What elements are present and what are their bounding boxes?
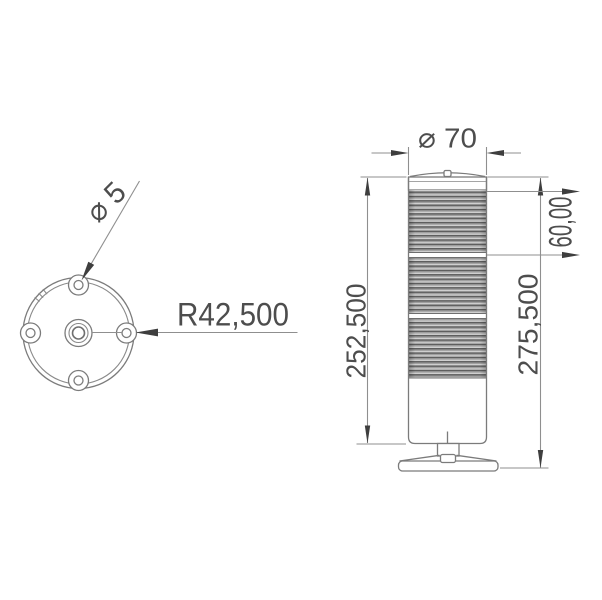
module-height-arrow-top	[562, 188, 580, 194]
mounting-hole-top	[74, 281, 83, 290]
foot-slope-right	[457, 455, 497, 461]
center-hub	[65, 320, 92, 347]
mounting-hole-bottom	[74, 376, 83, 385]
cap-nub	[444, 171, 451, 177]
body-height-label: 252,500	[341, 284, 372, 379]
diameter-arrow-right	[487, 150, 505, 156]
mounting-hole-right	[122, 329, 131, 338]
diameter-dimension: ⌀ 70	[372, 123, 522, 176]
technical-drawing: R42,500 ⌀ 5	[0, 0, 602, 600]
module-height-label: 60,00	[543, 197, 579, 248]
tower-cap	[409, 171, 487, 191]
foot-slope-left	[400, 455, 440, 461]
cap-body	[409, 177, 487, 190]
total-height-arrow-top	[538, 178, 543, 196]
top-view: R42,500 ⌀ 5	[21, 176, 298, 391]
diameter-label: ⌀ 70	[418, 123, 477, 154]
mounting-hole-left	[26, 329, 35, 338]
lens-module-2	[409, 258, 486, 314]
total-height-dimension: 275,500	[488, 177, 549, 468]
radius-arrowhead	[136, 329, 159, 337]
total-height-arrow-bottom	[538, 450, 543, 468]
body-height-dimension: 252,500	[341, 177, 407, 444]
drawing-canvas: R42,500 ⌀ 5	[0, 0, 602, 600]
body-height-arrow-top	[365, 178, 370, 196]
radius-label: R42,500	[177, 297, 289, 333]
foot-tab	[441, 455, 456, 463]
tower-foot	[399, 444, 499, 472]
diameter-arrow-left	[391, 150, 409, 156]
total-height-label: 275,500	[513, 274, 544, 376]
side-view	[399, 171, 499, 472]
body-height-arrow-bottom	[365, 426, 370, 444]
lens-module-1	[409, 190, 486, 253]
module-height-dimension: 60,00	[487, 188, 580, 258]
hole-diameter-label: ⌀ 5	[80, 176, 133, 229]
module-height-arrow-bottom	[562, 252, 580, 258]
lens-modules	[409, 190, 486, 378]
lens-module-3	[409, 319, 486, 379]
hole-diameter-callout: ⌀ 5	[80, 176, 140, 281]
